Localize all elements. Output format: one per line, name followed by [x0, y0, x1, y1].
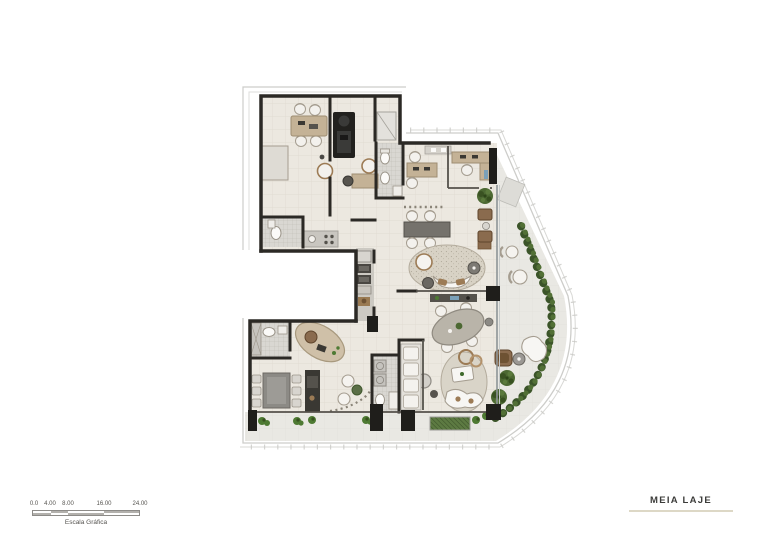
desk — [352, 174, 378, 188]
lounge-chair — [318, 164, 333, 179]
table-plant — [456, 323, 463, 330]
scale-tick-label: 0.0 — [30, 501, 38, 507]
washer — [374, 360, 386, 372]
round-chair — [416, 254, 432, 270]
planter-box — [430, 417, 470, 430]
vanity — [393, 186, 402, 196]
closet — [401, 344, 421, 410]
scale-tick-label: 8.00 — [62, 501, 74, 507]
scale-caption: Escala Gráfica — [32, 519, 140, 526]
conference-table — [404, 222, 450, 237]
desk — [452, 152, 490, 163]
dryer — [374, 374, 386, 386]
plan-title: MEIA LAJE — [629, 495, 733, 506]
pendant-light — [320, 155, 325, 160]
pouf-green — [352, 385, 362, 395]
terrace-tree — [499, 370, 515, 386]
lounge-chair — [362, 159, 376, 173]
bidet — [381, 172, 390, 184]
side-table — [482, 222, 489, 229]
armchair — [478, 209, 492, 220]
bistro-table — [506, 246, 518, 258]
toilet — [381, 152, 390, 164]
media-console — [430, 294, 477, 302]
lounge-seat — [513, 270, 527, 284]
toilet — [271, 227, 281, 240]
credenza — [262, 146, 288, 180]
sink — [278, 326, 287, 334]
pantry-appliances — [357, 251, 371, 306]
title-block: MEIA LAJE — [629, 495, 733, 512]
indoor-plant — [477, 188, 493, 204]
scale-tick-labels: 0.0 4.00 8.00 16.00 24.00 — [32, 501, 140, 509]
pouf — [342, 375, 354, 387]
tv — [450, 296, 459, 300]
scale-bar: 0.0 4.00 8.00 16.00 24.00 Escala Gráfica — [32, 501, 140, 526]
vanity — [389, 392, 398, 409]
desk-chair — [305, 331, 317, 343]
floor-lamp — [485, 318, 493, 326]
scale-bar-graphic — [32, 510, 140, 516]
floor-plan — [0, 0, 758, 535]
living-lounge — [409, 245, 485, 291]
sink — [309, 236, 316, 243]
armchair — [478, 231, 492, 242]
sink — [268, 220, 275, 228]
stool — [430, 390, 438, 398]
scale-tick-label: 4.00 — [44, 501, 56, 507]
pouf — [423, 278, 434, 289]
scale-tick-label: 24.00 — [132, 501, 147, 507]
fridge — [357, 251, 371, 262]
title-underline — [629, 510, 733, 512]
desk — [407, 163, 437, 177]
scale-tick-label: 16.00 — [96, 501, 111, 507]
pouf — [338, 393, 350, 405]
page: 0.0 4.00 8.00 16.00 24.00 Escala Gráfica… — [0, 0, 758, 535]
radiator — [484, 170, 488, 179]
toilet — [263, 328, 275, 337]
